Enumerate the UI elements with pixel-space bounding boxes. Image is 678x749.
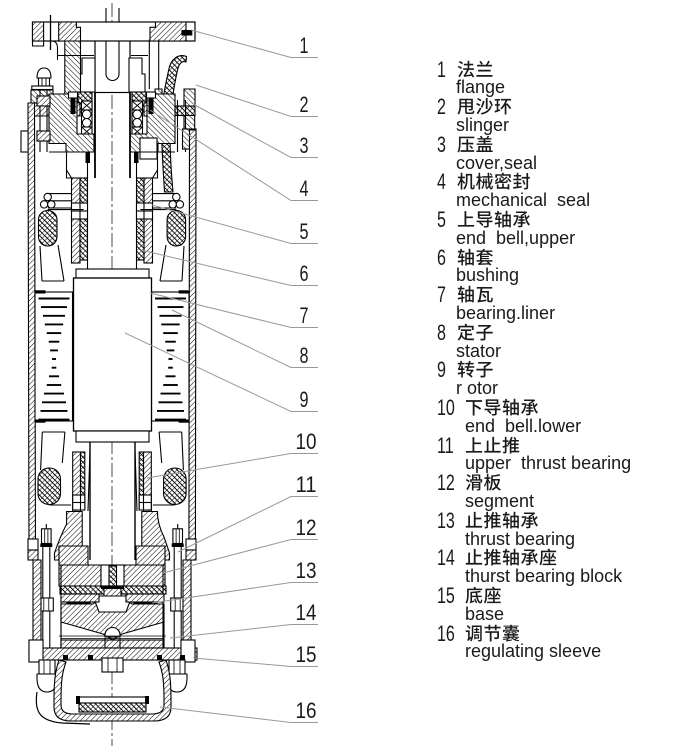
svg-text:6: 6 — [300, 261, 309, 286]
svg-text:9: 9 — [300, 387, 309, 412]
svg-text:3: 3 — [300, 133, 309, 158]
svg-text:10: 10 — [296, 429, 317, 454]
svg-text:12: 12 — [296, 515, 317, 540]
svg-text:1: 1 — [300, 33, 309, 58]
svg-text:7: 7 — [300, 303, 309, 328]
svg-text:13: 13 — [296, 558, 317, 583]
svg-text:14: 14 — [296, 600, 317, 625]
svg-text:5: 5 — [300, 219, 309, 244]
svg-text:4: 4 — [300, 176, 309, 201]
svg-text:8: 8 — [300, 343, 309, 368]
svg-text:15: 15 — [296, 642, 317, 667]
svg-text:16: 16 — [296, 698, 317, 723]
svg-text:11: 11 — [296, 472, 317, 497]
svg-text:2: 2 — [300, 92, 309, 117]
